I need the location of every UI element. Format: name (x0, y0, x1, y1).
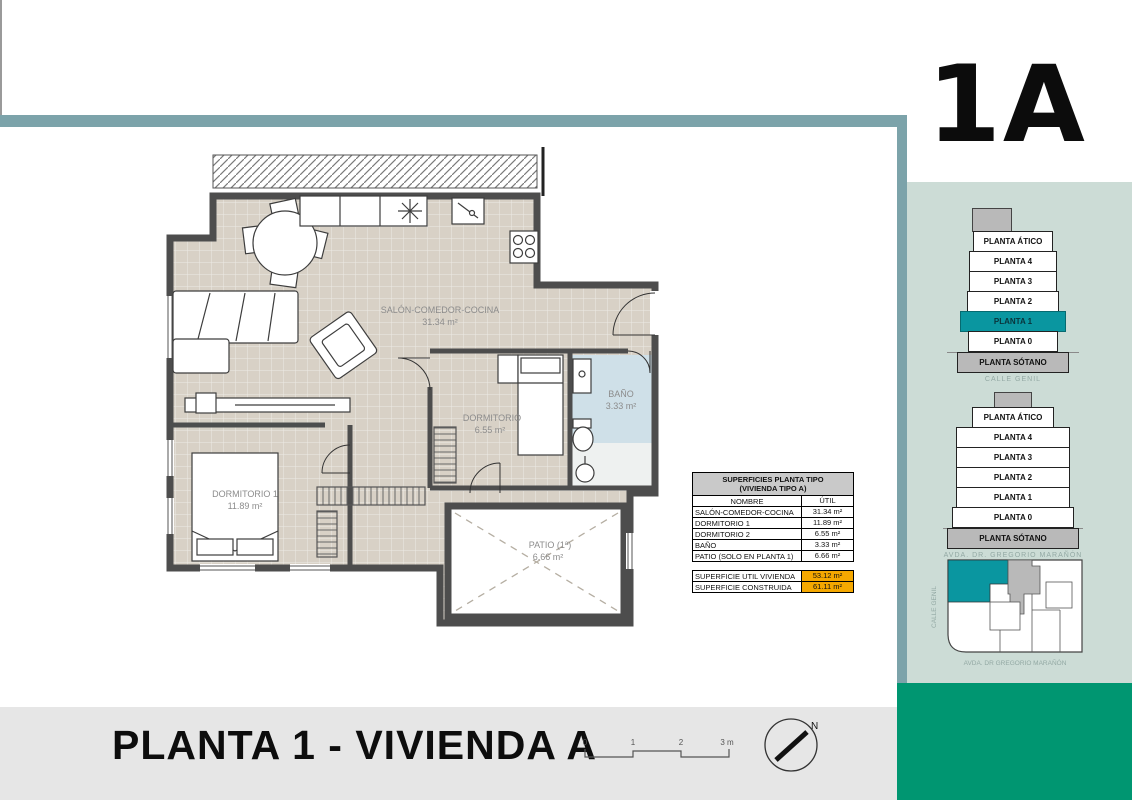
scale-bar: 0 1 2 3 m (578, 733, 743, 768)
stack2-planta-sotano: PLANTA SÓTANO (947, 528, 1079, 549)
stack2-planta-0: PLANTA 0 (952, 507, 1074, 528)
total-construida-row: SUPERFICIE CONSTRUIDA61.11 m² (692, 581, 854, 593)
unit-label: 1A (907, 30, 1107, 180)
label-dormitorio2: DORMITORIO (463, 413, 521, 423)
roof-box (994, 392, 1032, 408)
site-street-left: CALLE GENIL (931, 586, 938, 628)
table-title-line2: (VIVIENDA TIPO A) (693, 484, 853, 493)
floor-plan: SALÓN-COMEDOR-COCINA 31.34 m² DORMITORIO… (140, 143, 685, 638)
stack1-planta-4: PLANTA 4 (969, 251, 1057, 272)
total-construida-value: 61.11 m² (802, 581, 854, 593)
stack1-planta-2: PLANTA 2 (967, 291, 1059, 312)
scale-3m: 3 m (720, 738, 734, 747)
stack1-caption: CALLE GENIL (985, 376, 1041, 383)
stack1-planta-0: PLANTA 0 (968, 331, 1058, 352)
stack1-planta-sotano: PLANTA SÓTANO (957, 352, 1069, 373)
radiator (434, 427, 456, 483)
stack2-planta-3: PLANTA 3 (956, 447, 1070, 468)
scale-0: 0 (583, 738, 588, 747)
north-arrow: N (755, 705, 830, 777)
closet-strip (317, 511, 337, 557)
scale-1: 1 (631, 738, 636, 747)
stack1-planta-1-highlighted: PLANTA 1 (960, 311, 1066, 332)
site-plan: CALLE GENIL AVDA. DR GREGORIO MARAÑÓN (918, 552, 1108, 674)
roof-box (972, 208, 1012, 232)
stack2-planta-4: PLANTA 4 (956, 427, 1070, 448)
table-title-line1: SUPERFICIES PLANTA TIPO (693, 475, 853, 484)
floorplan-sheet: { "unit_label": "1A", "sheet_title": "PL… (0, 0, 1132, 800)
label-salon: SALÓN-COMEDOR-COCINA (381, 305, 500, 315)
label-dormitorio1: DORMITORIO 1 (212, 489, 278, 499)
label-patio: PATIO (1ª) (529, 540, 572, 550)
stack1-planta-3: PLANTA 3 (969, 271, 1057, 292)
window-left-edge (0, 0, 2, 127)
label-bano: BAÑO (608, 389, 634, 399)
sheet-title: PLANTA 1 - VIVIENDA A (112, 722, 597, 769)
surfaces-table: SUPERFICIES PLANTA TIPO (VIVIENDA TIPO A… (692, 472, 854, 593)
label-salon-area: 31.34 m² (422, 317, 458, 327)
drawing-frame-side-strip (897, 115, 907, 683)
stack2-planta-1: PLANTA 1 (956, 487, 1070, 508)
adjacent-building-hatch (213, 147, 543, 196)
wardrobe-strip (317, 487, 425, 505)
floor-stack-avda-maranon: PLANTA ÁTICO PLANTA 4 PLANTA 3 PLANTA 2 … (938, 392, 1088, 559)
table-row: PATIO (SOLO EN PLANTA 1)6.66 m² (692, 550, 854, 562)
site-street-bottom: AVDA. DR GREGORIO MARAÑÓN (964, 658, 1067, 667)
brand-green-block (897, 683, 1132, 800)
label-dormitorio1-area: 11.89 m² (228, 501, 263, 511)
north-label: N (811, 721, 818, 732)
label-bano-area: 3.33 m² (606, 401, 637, 411)
stack2-planta-atico: PLANTA ÁTICO (972, 407, 1054, 428)
stack1-planta-atico: PLANTA ÁTICO (973, 231, 1053, 252)
stack2-planta-2: PLANTA 2 (956, 467, 1070, 488)
label-patio-area: 6.66 m² (533, 552, 564, 562)
label-dormitorio2-area: 6.55 m² (475, 425, 506, 435)
floor-stack-calle-genil: PLANTA ÁTICO PLANTA 4 PLANTA 3 PLANTA 2 … (938, 208, 1088, 383)
scale-2: 2 (679, 738, 684, 747)
drawing-frame-top-bar (0, 115, 907, 127)
